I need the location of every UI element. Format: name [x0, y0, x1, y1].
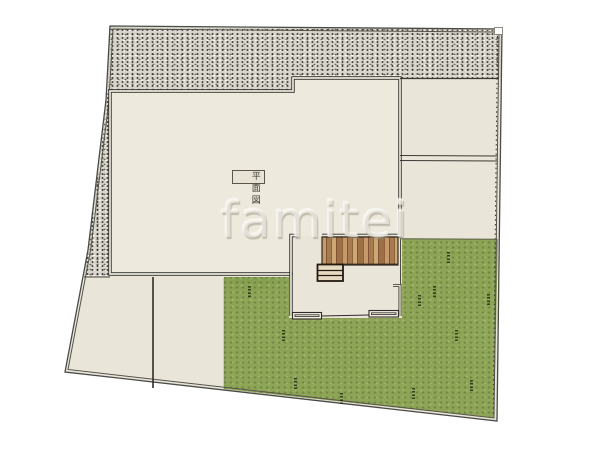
plant-label-mark	[294, 378, 297, 390]
plant-label-mark	[455, 330, 458, 342]
plant-label-mark	[282, 330, 285, 342]
plant-label-mark	[418, 295, 421, 307]
plant-label-mark	[487, 294, 490, 306]
plant-label-mark	[340, 393, 343, 405]
plant-label-mark	[412, 388, 415, 400]
site-plan-canvas: 平面図 famitei	[0, 0, 600, 450]
watermark-text: famitei	[200, 190, 430, 252]
plant-label-mark	[470, 380, 473, 392]
plant-label-mark	[248, 286, 251, 298]
floor-plan-label: 平面図	[232, 170, 265, 184]
plant-label-mark	[447, 252, 450, 264]
plant-label-mark	[433, 286, 436, 298]
